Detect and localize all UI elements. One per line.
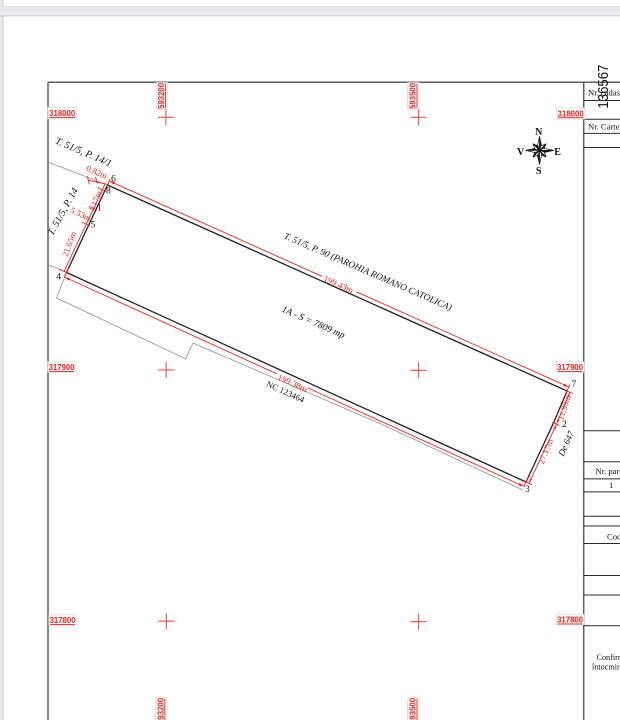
svg-text:199.43m: 199.43m [322,273,355,295]
svg-text:V: V [517,147,525,158]
svg-text:11.99m: 11.99m [555,393,573,421]
svg-text:318000: 318000 [49,109,76,118]
svg-text:Nr. Cartea Funciara: Nr. Cartea Funciara [588,122,620,132]
svg-text:593200: 593200 [156,697,165,720]
svg-text:593500: 593500 [409,82,418,109]
svg-text:N: N [535,127,543,138]
svg-text:E: E [554,147,561,158]
svg-text:593500: 593500 [409,697,418,720]
svg-text:Confirm executarea: Confirm executarea [597,653,620,662]
svg-text:317900: 317900 [49,363,76,372]
svg-text:27.17m: 27.17m [536,437,555,465]
svg-text:Nr. parcela: Nr. parcela [596,466,620,476]
svg-text:317900: 317900 [557,363,584,372]
svg-text:8: 8 [106,186,111,196]
svg-text:S: S [536,166,542,177]
svg-text:întocmirii documenta: întocmirii documenta [591,662,620,671]
svg-text:3: 3 [525,485,530,495]
svg-text:4: 4 [56,273,61,283]
svg-text:136567: 136567 [596,65,612,109]
svg-text:7: 7 [571,380,576,390]
svg-text:1: 1 [609,480,613,490]
svg-text:Cod constr.: Cod constr. [607,531,620,541]
svg-text:593200: 593200 [157,82,166,109]
svg-text:318000: 318000 [558,109,585,118]
svg-text:T. 51/5, P. 14/1: T. 51/5, P. 14/1 [53,136,113,170]
svg-text:317800: 317800 [50,616,77,625]
svg-text:1A - S = 7809 mp: 1A - S = 7809 mp [280,304,347,341]
svg-text:317800: 317800 [557,616,584,625]
svg-text:De 647: De 647 [556,429,576,458]
svg-text:5: 5 [91,221,96,231]
